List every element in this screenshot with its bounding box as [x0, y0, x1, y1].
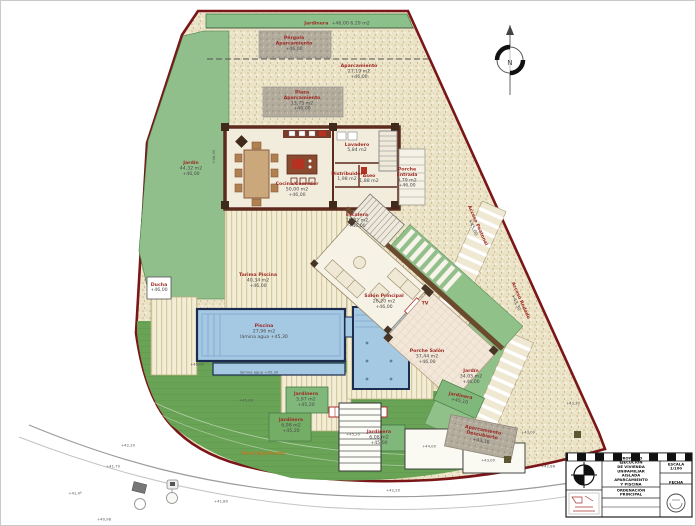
street-lamp: [167, 480, 179, 504]
plan-thumbnail: [569, 493, 599, 514]
house: [221, 123, 425, 209]
entry-walkway: [399, 149, 425, 205]
north-arrow: [497, 25, 523, 95]
site-plan-page: Jardinera+46,00 6,29 m2 Pérgola Aparcami…: [0, 0, 696, 526]
pool-link: [345, 317, 353, 337]
pool-overflow: [213, 363, 345, 375]
top-planter-strip: [206, 14, 414, 28]
site-plan-drawing: [1, 1, 695, 525]
title-block: [566, 453, 692, 517]
left-garden: [139, 31, 229, 299]
manhole: [135, 499, 146, 510]
kitchen-counter: [283, 130, 331, 138]
interior-stair: [379, 131, 397, 171]
scale-bar: [566, 453, 692, 461]
toilet: [361, 167, 367, 174]
utility-box: [132, 482, 147, 494]
shower-box: [147, 277, 171, 299]
street-symbols: [132, 480, 178, 510]
